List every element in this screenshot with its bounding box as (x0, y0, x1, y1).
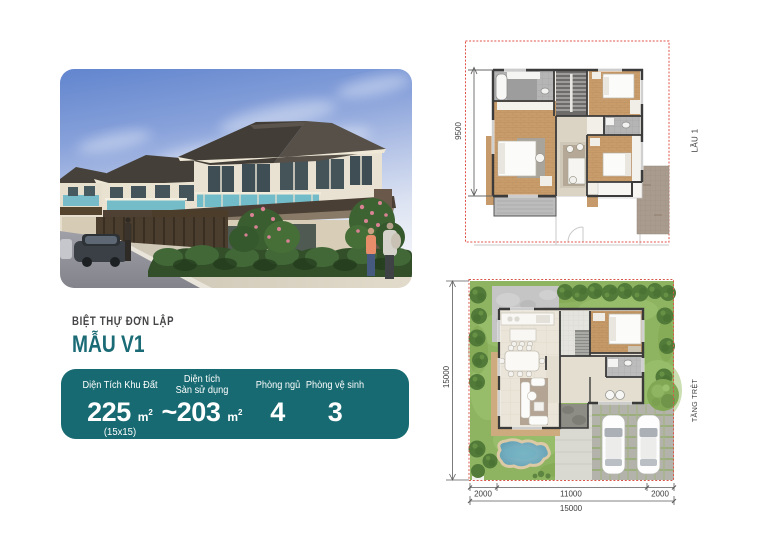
svg-text:15000: 15000 (560, 504, 583, 513)
svg-text:2000: 2000 (474, 490, 492, 499)
svg-text:9500: 9500 (454, 122, 463, 140)
svg-text:11000: 11000 (560, 490, 582, 499)
svg-text:15000: 15000 (442, 365, 451, 388)
svg-text:2000: 2000 (651, 490, 669, 499)
